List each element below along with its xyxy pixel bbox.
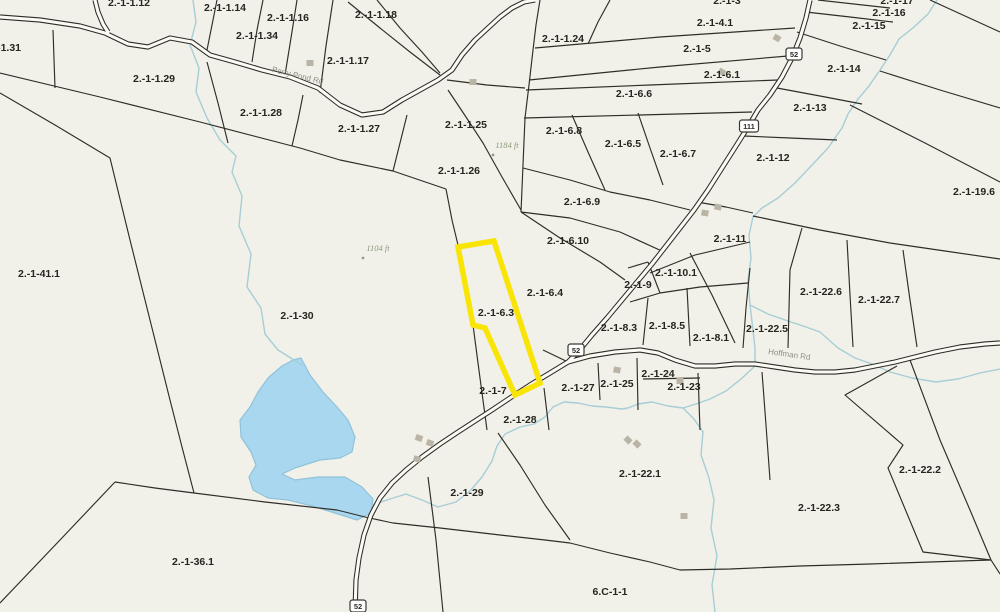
building-footprint <box>307 60 314 66</box>
parcel-label: 2.-1-1.18 <box>355 9 397 21</box>
parcel-boundary <box>660 283 748 293</box>
route-shield-number: 52 <box>354 602 362 611</box>
parcel-boundary <box>53 30 55 88</box>
building-footprint <box>470 79 477 85</box>
parcel-label: 2.-1-6.10 <box>547 235 589 247</box>
parcel-label: 2.-1-22.1 <box>619 468 661 480</box>
parcel-boundary <box>744 136 837 140</box>
parcel-label: 2.-1-1.29 <box>133 73 175 85</box>
parcel-label: 2.-1-1.25 <box>445 119 487 131</box>
parcel-label: 2.-1-5 <box>683 43 711 55</box>
building-footprint <box>632 439 641 448</box>
parcel-label: 6.C-1-1 <box>592 586 627 598</box>
parcel-boundary <box>448 90 521 210</box>
parcel-boundary <box>207 62 228 143</box>
parcel-label: 2.-1-4.1 <box>697 17 733 29</box>
parcel-label: 2.-1-15 <box>852 20 885 32</box>
parcel-boundary <box>588 0 610 44</box>
parcel-boundary <box>115 482 194 493</box>
parcel-label: 2.-1-1.24 <box>542 33 584 45</box>
parcel-label: 2.-1-3 <box>713 0 741 7</box>
parcel-label: 2.-1-6.7 <box>660 148 696 160</box>
parcel-boundary <box>529 56 788 80</box>
parcel-boundary <box>523 168 690 210</box>
parcel-label: 2.-1-1.12 <box>108 0 150 9</box>
parcel-label: 2.-1-10.1 <box>655 267 697 279</box>
parcel-boundary <box>393 115 407 171</box>
parcel-label: 2.-1-1.31 <box>0 42 21 54</box>
parcel-label: 2.-1-1.34 <box>236 30 278 42</box>
parcel-label: 2.-1-36.1 <box>172 556 214 568</box>
parcel-label: 2.-1-13 <box>793 102 826 114</box>
parcel-boundary <box>903 250 917 347</box>
parcel-label: 2.-1-1.26 <box>438 165 480 177</box>
parcel-label: 2.-1-1.17 <box>327 55 369 67</box>
parcel-boundary <box>847 240 853 347</box>
parcel-boundary <box>447 80 525 88</box>
building-footprint <box>623 435 632 444</box>
parcel-boundary <box>637 358 638 410</box>
parcel-label: 2.-1-9 <box>624 279 652 291</box>
stream-line <box>748 0 937 366</box>
parcel-boundary <box>762 372 770 480</box>
parcel-boundary <box>991 560 1000 574</box>
building-footprint <box>415 434 424 442</box>
parcel-boundary <box>753 216 1000 259</box>
parcel-label: 2.-1-8.1 <box>693 332 729 344</box>
stream-line <box>683 408 717 612</box>
parcel-label: 2.-1-11 <box>714 233 747 245</box>
map-viewport[interactable]: 2.-1-1.122.-1-1.142.-1-1.162.-1-1.342.-1… <box>0 0 1000 612</box>
route-shield-number: 52 <box>572 346 580 355</box>
parcel-label: 2.-1-25 <box>600 378 633 390</box>
elevation-dot <box>492 154 494 156</box>
parcel-label: 2.-1-6.6 <box>616 88 652 100</box>
parcel-label: 2.-1-6.8 <box>546 125 582 137</box>
parcel-boundary <box>643 298 648 345</box>
parcel-label: 2.-1-22.7 <box>858 294 900 306</box>
parcel-boundary <box>0 482 115 603</box>
parcel-label: 2.-1-6.9 <box>564 196 600 208</box>
parcel-boundary <box>628 262 648 268</box>
parcel-label: 2.-1-6.5 <box>605 138 641 150</box>
parcel-label: 2.-1-24 <box>641 368 674 380</box>
parcel-boundary <box>880 71 1000 108</box>
parcel-label: 2.-1-22.6 <box>800 286 842 298</box>
parcel-label: 2.-1-6.4 <box>527 287 563 299</box>
parcel-label: 2.-1-23 <box>667 381 700 393</box>
building-footprint <box>714 203 722 210</box>
building-footprint <box>701 209 709 216</box>
route-shield-number: 111 <box>743 122 755 131</box>
parcel-boundary <box>845 366 991 560</box>
road-name-label: Perry Pond Rd <box>271 65 324 86</box>
parcel-boundary <box>797 32 886 60</box>
parcel-label: 2.-1-8.3 <box>601 322 637 334</box>
parcel-boundary <box>498 433 570 540</box>
parcel-label: 2.-1-29 <box>450 487 483 499</box>
parcel-boundary <box>446 189 458 245</box>
building-footprint <box>426 439 435 447</box>
building-footprint <box>681 513 688 519</box>
parcel-boundary <box>524 112 752 118</box>
parcel-label: 2.-1-8.5 <box>649 320 685 332</box>
parcel-boundary <box>0 93 194 493</box>
parcel-label: 2.-1-1.28 <box>240 107 282 119</box>
parcel-map[interactable]: 2.-1-1.122.-1-1.142.-1-1.162.-1-1.342.-1… <box>0 0 1000 612</box>
parcel-boundary <box>630 293 660 302</box>
parcel-boundary <box>521 212 664 252</box>
parcel-boundary <box>687 288 690 346</box>
parcel-label: 2.-1-1.16 <box>267 12 309 24</box>
parcel-label: 2.-1-27 <box>561 382 594 394</box>
parcel-boundary <box>850 105 1000 182</box>
parcel-label: 2.-1-22.2 <box>899 464 941 476</box>
parcel-label: 2.-1-22.5 <box>746 323 788 335</box>
elevation-label: 1184 ft <box>495 140 519 150</box>
parcel-boundary <box>292 95 303 146</box>
building-footprint <box>613 366 621 373</box>
elevation-label: 1104 ft <box>366 243 390 253</box>
parcel-boundary <box>521 0 540 212</box>
parcel-label: 2.-1-7 <box>479 385 507 397</box>
parcel-boundary <box>428 477 443 612</box>
parcel-boundary <box>930 0 1000 32</box>
parcel-label: 2.-1-30 <box>280 310 313 322</box>
parcel-label: 2.-1-16 <box>872 7 905 19</box>
pond-water <box>240 358 373 520</box>
parcel-label: 2.-1-19.6 <box>953 186 995 198</box>
parcel-label: 2.-1-1.14 <box>204 2 246 14</box>
parcel-boundary <box>910 360 991 560</box>
stream-line <box>372 402 622 507</box>
parcel-label: 2.-1-6.3 <box>478 307 514 319</box>
parcel-label: 2.-1-28 <box>503 414 536 426</box>
parcel-label: 2.-1-22.3 <box>798 502 840 514</box>
parcel-label: 2.-1-17 <box>880 0 913 7</box>
parcel-boundary <box>544 388 549 430</box>
parcel-label: 2.-1-6.1 <box>704 69 740 81</box>
parcel-boundary <box>543 350 568 362</box>
parcel-label: 2.-1-12 <box>756 152 789 164</box>
elevation-dot <box>362 257 364 259</box>
parcel-label: 2.-1-14 <box>827 63 860 75</box>
parcel-label: 2.-1-41.1 <box>18 268 60 280</box>
parcel-boundary <box>743 268 750 348</box>
parcel-label: 2.-1-1.27 <box>338 123 380 135</box>
building-footprint <box>772 34 781 43</box>
road-name-label: Hoffman Rd <box>768 347 811 362</box>
route-shield-number: 52 <box>790 50 798 59</box>
